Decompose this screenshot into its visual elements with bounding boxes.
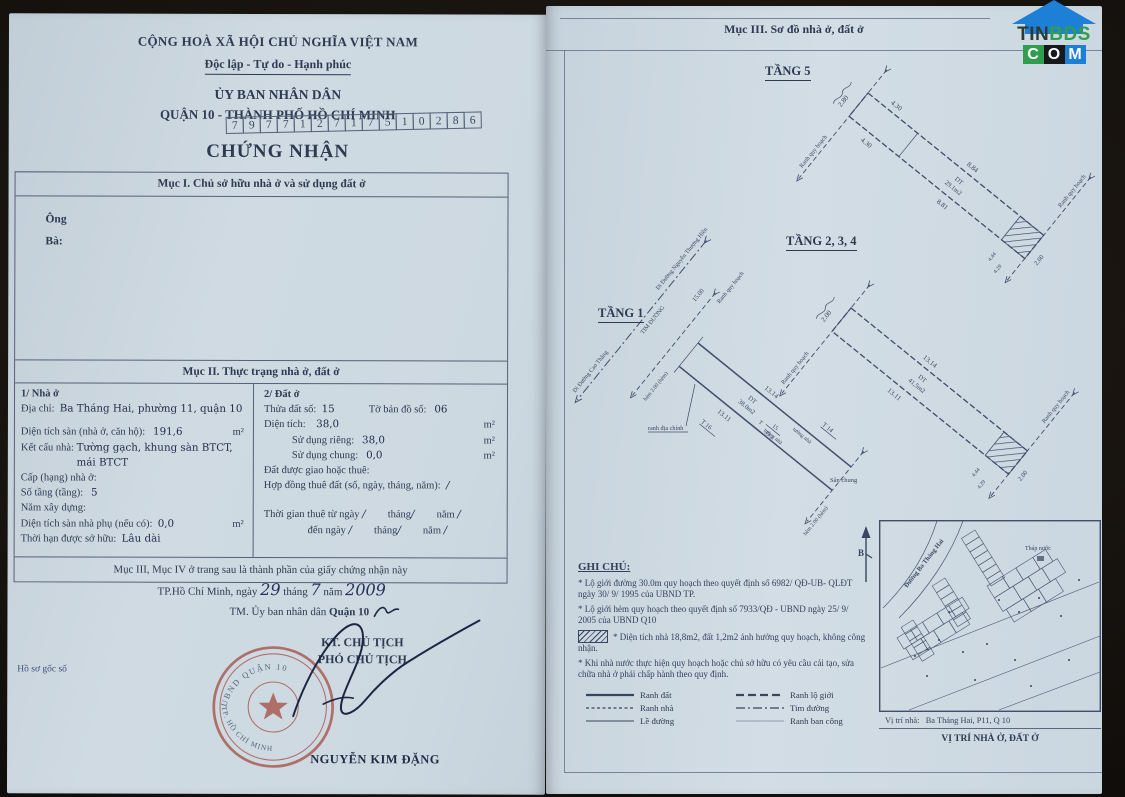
lease-from-label: Thời gian thuê từ ngày [264, 507, 360, 522]
logo-text-row1: TINBDS [1002, 26, 1106, 44]
lease-from-month-label: tháng [388, 508, 411, 523]
map-caption: Vị trí nhà: Ba Tháng Hai, P11, Q 10 [879, 714, 1101, 729]
serial-digit: 7 [328, 114, 346, 131]
floors-value: 5 [91, 486, 98, 501]
lease-from-day: / [362, 508, 366, 523]
floor234-ranh-quy-hoach-front: Ranh quy hoạch [780, 350, 811, 386]
north-arrow-icon: B [858, 524, 874, 590]
road-nguyen-thuong-hien-label: Đi Đường Nguyễn Thượng Hiền [654, 226, 709, 291]
floor1-hem-front: hẻm 2.00 (hẻm) [642, 370, 670, 402]
lease-from-year: / [457, 508, 461, 523]
note-alley-boundary: * Lộ giới hẻm quy hoạch theo quyết định … [578, 604, 866, 627]
floor1-wall-top-label: tường nhà [791, 427, 812, 446]
map-title: VỊ TRÍ NHÀ Ở, ĐẤT Ở [879, 734, 1101, 744]
house-title: 1/ Nhà ở [21, 386, 248, 402]
sign-place: TP.Hồ Chí Minh [157, 586, 230, 598]
floor-area-label: Diện tích sàn (nhà ở, căn hộ): [21, 425, 145, 441]
serial-digit: 5 [379, 113, 397, 130]
floor5-dim-444: 4.44 [987, 251, 998, 262]
floor234-title: TẦNG 2, 3, 4 [786, 234, 857, 251]
lease-to-year: / [444, 523, 448, 538]
logo-text-row2: COM [1002, 45, 1106, 64]
issuing-committee: ỦY BAN NHÂN DÂN [9, 84, 547, 106]
logo-o: O [1044, 45, 1065, 64]
certificate-left-page: CỘNG HOÀ XÃ HỘI CHỦ NGHĨA VIỆT NAM Độc l… [7, 13, 547, 794]
handwritten-day: 29 [260, 580, 280, 599]
map-sheet-value: 06 [434, 403, 447, 418]
aux-area-unit: m² [232, 517, 247, 532]
lease-to-year-label: năm [423, 523, 441, 538]
north-label: B [858, 548, 864, 558]
month-label: tháng [283, 586, 307, 598]
land-column: 2/ Đất ở Thửa đất số: 15Tờ bản đồ số: 06… [254, 384, 507, 558]
serial-digit: 9 [243, 116, 261, 133]
house-column: 1/ Nhà ở Địa chỉ: Ba Tháng Hai, phường 1… [15, 383, 254, 557]
bold-dashed-line-icon [736, 692, 784, 698]
land-area-value: 38,0 [316, 418, 339, 433]
house-roof-icon [1012, 0, 1096, 24]
tinbds-watermark-logo: TINBDS COM [1002, 0, 1106, 70]
floor5-dim-881: 8.81 [935, 198, 950, 212]
legend-item-tim-duong: Tim đường [736, 703, 886, 713]
footer-note: Mục III, Mục IV ở trang sau là thành phầ… [15, 556, 507, 582]
tenure-value: Lâu dài [122, 531, 161, 546]
note-compliance: * Khi nhà nước thực hiện quy hoạch hoặc … [578, 658, 866, 681]
floor5-dim-430-top: 4.30 [889, 99, 904, 113]
serial-digit: 1 [396, 113, 414, 130]
floors-label: Số tầng (tầng): [21, 486, 83, 501]
country-name: CỘNG HOÀ XÃ HỘI CHỦ NGHĨA VIỆT NAM [9, 31, 547, 52]
section1-header: Mục I. Chủ sở hữu nhà ở và sử dụng đất ở [16, 172, 508, 196]
floor5-dim-429: 4.29 [993, 263, 1004, 274]
note-affected-area: * Diện tích nhà 18,8m2, đất 1,2m2 ảnh hư… [578, 630, 866, 655]
allocation-label: Đất được giao hoặc thuê: [264, 463, 370, 478]
notes-section: GHI CHÚ: * Lộ giới đường 30.0m quy hoạch… [578, 562, 866, 684]
aux-area-value: 0,0 [158, 516, 174, 531]
lease-to-month: / [397, 523, 401, 538]
floor1-dim-1311: 13.11 [716, 408, 733, 424]
legend-item-ranh-ban-cong: Ranh ban công [736, 716, 886, 726]
map-parcels [881, 530, 1100, 710]
section2-header: Mục II. Thực trạng nhà ở, đất ở [15, 359, 507, 383]
legend-label: Ranh đất [640, 690, 672, 700]
floor234-dim-444: 4.44 [971, 467, 982, 478]
lease-contract-label: Hợp đồng thuê đất (số, ngày, tháng, năm)… [264, 478, 441, 494]
floor5-ranh-quy-hoach-front: Ranh quy hoạch [798, 133, 829, 169]
floor234-dim-200-front: 2.00 [819, 309, 833, 324]
floor1-plan: Đi Đường Nguyễn Thượng Hiền Đi Đường Cao… [569, 226, 918, 565]
diagram-right-page: Mục III. Sơ đồ nhà ở, đất ở [546, 6, 1102, 794]
location-map: Đường Ba Tháng Hai Tháp nước [879, 520, 1101, 712]
floor234-dim-200-end: 2.00 [1017, 469, 1030, 482]
dash-dot-line-icon [736, 705, 784, 711]
serial-digit: 1 [294, 115, 312, 132]
floor234-dim-429: 4.29 [976, 479, 987, 490]
lease-to-label: đến ngày [308, 523, 346, 538]
legend-label: Lề đường [640, 716, 674, 726]
floor5-ranh-quy-hoach-end: Ranh quy hoạch [1057, 173, 1088, 209]
note-affected-area-text: * Diện tích nhà 18,8m2, đất 1,2m2 ảnh hư… [578, 632, 865, 654]
floor234-plan: 2.00 13.14 13.11 DT 41,5m2 Ranh quy hoạc… [765, 236, 1087, 546]
lease-contract-value: / [446, 479, 450, 494]
owner-mrs-label: Bà: [45, 230, 507, 253]
owner-box: Ông Bà: [15, 195, 507, 360]
serial-digit: 7 [226, 117, 244, 134]
floor5-dim-884: 8.84 [965, 160, 980, 174]
land-area-unit: m² [484, 418, 499, 433]
serial-digit: 7 [260, 116, 278, 133]
water-tower-label: Tháp nước [1025, 546, 1051, 552]
floor234-dim-1311: 13.11 [886, 386, 903, 402]
logo-m: M [1065, 45, 1086, 64]
logo-tin: TIN [1017, 24, 1049, 45]
serial-digit: 2 [311, 115, 329, 132]
tenure-label: Thời hạn được sở hữu: [21, 531, 117, 546]
note-road-boundary: * Lộ giới đường 30.0m quy hoạch theo quy… [578, 578, 866, 601]
lease-to-month-label: tháng [374, 523, 397, 538]
road-cao-thang-label: Đi Đường Cao Thắng [571, 349, 609, 394]
parcel15-t-label: T [757, 420, 764, 427]
lease-from-year-label: năm [437, 508, 455, 523]
structure-label: Kết cấu nhà: [21, 440, 74, 455]
serial-digit: 8 [447, 112, 465, 129]
address-value: Ba Tháng Hai, phường 11, quận 10 [60, 402, 243, 418]
legend-label: Ranh nhà [640, 703, 673, 713]
legend-label: Ranh lộ giới [790, 690, 834, 700]
legend-item-le-duong: Lề đường [586, 716, 736, 726]
legend-item-ranh-nha: Ranh nhà [586, 703, 736, 713]
legend: Ranh đất Ranh lộ giới Ranh nhà Tim đường… [586, 690, 886, 726]
map-parcel-dots [914, 579, 1080, 687]
section2-columns: 1/ Nhà ở Địa chỉ: Ba Tháng Hai, phường 1… [15, 382, 507, 557]
floor5-title: TẦNG 5 [765, 64, 811, 81]
date-prefix: , ngày [231, 586, 258, 598]
notes-title: GHI CHÚ: [578, 562, 866, 574]
floor5-plan: 2.80 4.30 4.30 8.84 8.81 DT 29.1m2 Ranh … [782, 50, 1098, 331]
certificate-table: Mục I. Chủ sở hữu nhà ở và sử dụng đất ở… [14, 171, 509, 583]
handwritten-year: 2009 [345, 580, 386, 599]
floor1-title: TẦNG 1 [598, 306, 644, 323]
shared-use-value: 0,0 [366, 448, 382, 463]
year-label: năm [323, 586, 342, 598]
floor5-dim-430-bottom: 4.30 [859, 136, 874, 150]
logo-bds: BDS [1049, 24, 1091, 45]
san-chung-label: Sân chung [830, 477, 858, 484]
private-use-unit: m² [484, 433, 499, 448]
map-caption-label: Vị trí nhà: [885, 716, 919, 725]
year-built-label: Năm xây dựng: [21, 501, 86, 516]
floor5-dim-200: 2.00 [1033, 254, 1046, 267]
date-line: TP.Hồ Chí Minh, ngày 29 tháng 7 năm 2009 [157, 580, 537, 600]
serial-digit: 1 [345, 114, 363, 131]
lease-to-day: / [348, 523, 352, 538]
hatch-swatch-icon [578, 630, 608, 643]
logo-c: C [1023, 45, 1044, 64]
thin-solid-line-icon [586, 718, 634, 724]
legend-item-ranh-lo-gioi: Ranh lộ giới [736, 690, 886, 700]
floor234-ranh-quy-hoach-end: Ranh quy hoạch [1041, 388, 1072, 424]
structure-value: Tường gạch, khung sàn BTCT, mái BTCT [77, 440, 248, 471]
floor5-dim-280: 2.80 [836, 94, 850, 109]
aux-area-label: Diện tích sàn nhà phụ (nếu có): [21, 516, 153, 532]
private-use-label: Sử dụng riêng: [292, 433, 354, 448]
shared-use-label: Sử dụng chung: [292, 448, 358, 463]
legend-label: Tim đường [790, 703, 829, 713]
land-title: 2/ Đất ở [264, 387, 499, 403]
serial-digit: 7 [362, 114, 380, 131]
dossier-number-label: Hồ sơ gốc số [17, 664, 67, 674]
grade-label: Cấp (hạng) nhà ở: [21, 470, 97, 485]
handwritten-month: 7 [310, 580, 320, 599]
parcel-value: 15 [322, 402, 335, 417]
floor1-hem-back: hẻm 2.00 (hẻm) [802, 505, 830, 537]
floor5-hatched-area [1001, 216, 1043, 258]
solid-line-icon [586, 692, 634, 698]
private-use-value: 38,0 [362, 433, 385, 448]
lease-from-month: / [411, 508, 415, 523]
floor1-ranh-quy-hoach: Ranh quy hoạch [716, 271, 745, 305]
parcel15-number: 15 [771, 423, 779, 431]
certificate-title: CHỨNG NHẬN [9, 140, 547, 163]
floor234-hatched-area [985, 432, 1027, 474]
land-area-label: Diện tích: [264, 417, 306, 432]
shared-use-unit: m² [484, 448, 499, 463]
section3-header: Mục III. Sơ đồ nhà ở, đất ở [546, 22, 1042, 37]
legend-item-ranh-dat: Ranh đất [586, 690, 736, 700]
serial-digit: 6 [464, 111, 482, 128]
floor-area-unit: m² [233, 425, 248, 440]
legend-label: Ranh ban công [790, 716, 843, 726]
serial-digit: 7 [277, 116, 295, 133]
address-label: Địa chỉ: [21, 402, 55, 417]
map-sheet-label: Tờ bản đồ số: [369, 402, 427, 417]
light-line-icon [736, 718, 784, 724]
map-caption-value: Ba Tháng Hai, P11, Q 10 [926, 716, 1010, 725]
photo-of-certificate: CỘNG HOÀ XÃ HỘI CHỦ NGHĨA VIỆT NAM Độc l… [0, 0, 1125, 797]
owner-mr-label: Ông [45, 208, 507, 231]
parcel-label: Thửa đất số: [264, 402, 316, 417]
national-motto: Độc lập - Tự do - Hạnh phúc [205, 54, 352, 74]
serial-digit: 2 [430, 112, 448, 129]
signer-name: NGUYỄN KIM ĐẶNG [245, 752, 505, 768]
floor-area-value: 191,6 [153, 425, 183, 440]
floor1-dim-1500: 15.00 [691, 288, 706, 304]
serial-digit: 0 [413, 113, 431, 130]
ranh-dia-chinh-label: ranh địa chính [648, 425, 684, 432]
handwritten-signature [279, 608, 489, 749]
dotted-line-icon [586, 705, 634, 711]
